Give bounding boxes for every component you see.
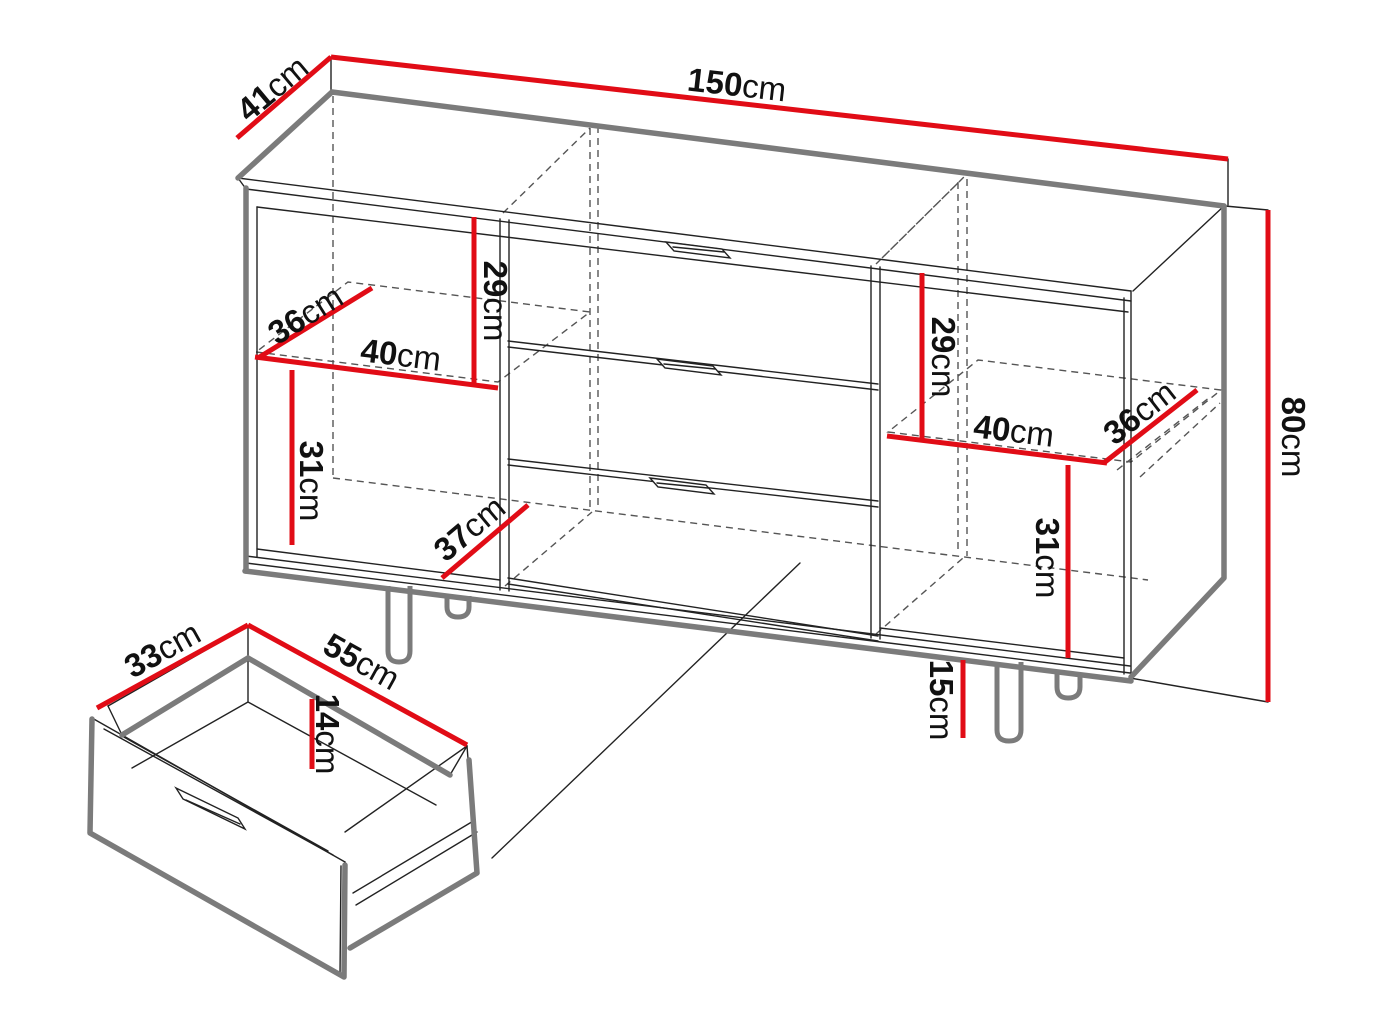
furniture-dimension-diagram: 41cm 150cm 80cm 29cm 36cm 40cm 31cm 37cm… [0, 0, 1381, 1035]
partition1-back-dashed [590, 126, 598, 510]
drawer-front-panel-inner-edges [104, 729, 333, 855]
drawer-right-wall-top-edge [345, 746, 467, 832]
dim-right-above-shelf-label: 29cm [926, 317, 963, 398]
dimension-labels: 41cm 150cm 80cm 29cm 36cm 40cm 31cm 37cm… [118, 48, 1313, 774]
drawer-front-panel-outline [90, 719, 345, 977]
partition1-bottom-dashed [505, 512, 592, 586]
back-right-leg [1057, 674, 1080, 698]
partition2-front-edge [871, 266, 880, 639]
front-right-leg [997, 662, 1021, 741]
top-surface-right-edge [1133, 206, 1224, 291]
dim-leg-height-label: 15cm [924, 660, 961, 741]
height-top-connector [1225, 206, 1268, 210]
dim-left-shelf-depth-label: 36cm [261, 277, 349, 351]
front-left-leg [388, 586, 410, 662]
height-bottom-connector [1130, 678, 1268, 702]
drawer-detail-handle-inner [186, 800, 240, 824]
drawer-detail-handle [176, 788, 245, 829]
dim-left-above-shelf-label: 29cm [478, 261, 515, 342]
thin-edges [92, 57, 1268, 977]
drawer-right-wall-bottom-lines [353, 820, 477, 905]
drawer-right-wall-outline [350, 760, 477, 948]
drawer-inner-rim-edge [122, 658, 450, 775]
top-front-edge [238, 178, 1131, 291]
diagram-canvas: 41cm 150cm 80cm 29cm 36cm 40cm 31cm 37cm… [0, 0, 1381, 1035]
dimension-lines [97, 57, 1268, 769]
right-panel-front-edge [1124, 291, 1131, 677]
partition2-top-dashed [876, 174, 967, 264]
dim-drawer-height-label: 14cm [310, 694, 347, 775]
top-back-and-left-edge [238, 92, 1224, 206]
dim-cabinet-height-label: 80cm [1276, 397, 1313, 478]
partition2-bottom-dashed [876, 558, 963, 634]
partition1-top-dashed [503, 128, 590, 213]
interior-ceiling-edge [257, 207, 1128, 312]
dim-right-below-shelf-label: 31cm [1030, 518, 1067, 599]
dim-left-below-shelf-label: 31cm [294, 441, 331, 522]
